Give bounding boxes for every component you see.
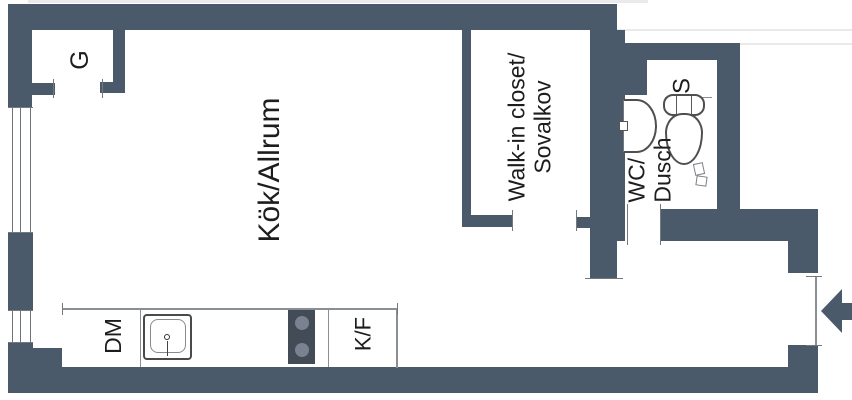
window-upper-line-outer <box>12 107 13 233</box>
small-annotation-mark-2 <box>695 175 707 186</box>
small-annotation-mark-1 <box>693 162 705 176</box>
scan-streak-top <box>28 0 648 3</box>
entry-door-tick-bottom <box>806 345 822 346</box>
room-label-wardrobe: G <box>66 50 94 69</box>
wall-divider-lower <box>590 241 617 278</box>
counter-top-edge <box>62 308 398 310</box>
room-label-wc-dusch: WC/ Dusch <box>624 137 676 202</box>
wardrobe-door-tick-left <box>53 79 54 98</box>
counter-left-tick <box>62 303 63 315</box>
counter-divider-dm <box>140 309 141 367</box>
window-lower-end-tick-top <box>8 310 33 311</box>
wall-hall-right-upper <box>788 241 818 273</box>
stove-burner-bottom <box>295 343 309 357</box>
washbasin-tap <box>619 121 628 131</box>
kitchen-sink-faucet-stem <box>167 341 168 356</box>
wall-walkin-stub <box>577 217 591 228</box>
entrance-arrow-icon <box>821 289 842 333</box>
wardrobe-door-tick-right <box>102 79 103 98</box>
window-upper-line-mid <box>20 107 21 233</box>
wall-left-upper <box>8 4 32 107</box>
wall-hall-right-lower <box>788 345 818 369</box>
counter-right-tick <box>397 303 398 315</box>
appliance-label-dishwasher: DM <box>101 318 127 354</box>
wc-door-tick-left <box>627 204 628 245</box>
window-upper-end-tick-top <box>8 107 33 108</box>
wc-door-tick-right <box>660 204 661 245</box>
entrance-arrow-tail <box>841 303 852 320</box>
window-lower-line-inner <box>30 310 31 343</box>
entry-door-tick-top <box>806 276 822 277</box>
room-label-cabinet: S <box>670 78 697 94</box>
scan-streak-ne <box>617 29 852 31</box>
floorplan: Kök/Allrum Walk-in closet/ Sovalkov WC/ … <box>0 0 852 400</box>
room-label-walkin-closet: Walk-in closet/ Sovalkov <box>504 53 556 202</box>
wall-bottom <box>8 367 818 393</box>
entry-door-line <box>815 277 817 345</box>
wall-top <box>8 4 617 30</box>
room-label-kitchen-living: Kök/Allrum <box>253 97 287 242</box>
scan-streak-e <box>740 43 852 45</box>
wall-left-mid <box>8 233 33 310</box>
wall-east-right <box>717 43 740 217</box>
room-label-walkin-line1: Walk-in closet/ <box>504 53 530 202</box>
toilet-tank-line-2 <box>691 96 692 114</box>
window-upper-end-tick-bottom <box>8 232 33 233</box>
counter-divider-kf <box>328 309 329 367</box>
appliance-label-fridge-freezer: K/F <box>352 317 377 351</box>
room-label-walkin-line2: Sovalkov <box>530 53 556 202</box>
room-label-wc-line1: WC/ <box>624 137 650 202</box>
wall-walkin-foot <box>462 215 513 227</box>
kitchen-sink-faucet-dot <box>164 334 170 340</box>
counter-right-edge <box>396 308 398 368</box>
window-lower-line-mid <box>20 310 21 343</box>
window-lower-line-outer <box>12 310 13 343</box>
walkin-door-tick-left <box>512 210 513 231</box>
wall-wc-corner <box>617 43 647 95</box>
window-lower-end-tick-bottom <box>8 342 33 343</box>
toilet-tank-line-1 <box>676 96 677 114</box>
divider-wall-end-tick <box>585 278 623 279</box>
wall-hall-top <box>660 209 818 241</box>
wall-wardrobe-stub <box>32 83 55 95</box>
wall-wardrobe-right <box>113 30 125 93</box>
window-upper-line-inner <box>30 107 31 233</box>
walkin-door-tick-right <box>576 210 577 231</box>
room-label-wc-line2: Dusch <box>650 137 676 202</box>
stove-burner-top <box>295 316 309 330</box>
wall-walkin-left <box>462 30 471 216</box>
